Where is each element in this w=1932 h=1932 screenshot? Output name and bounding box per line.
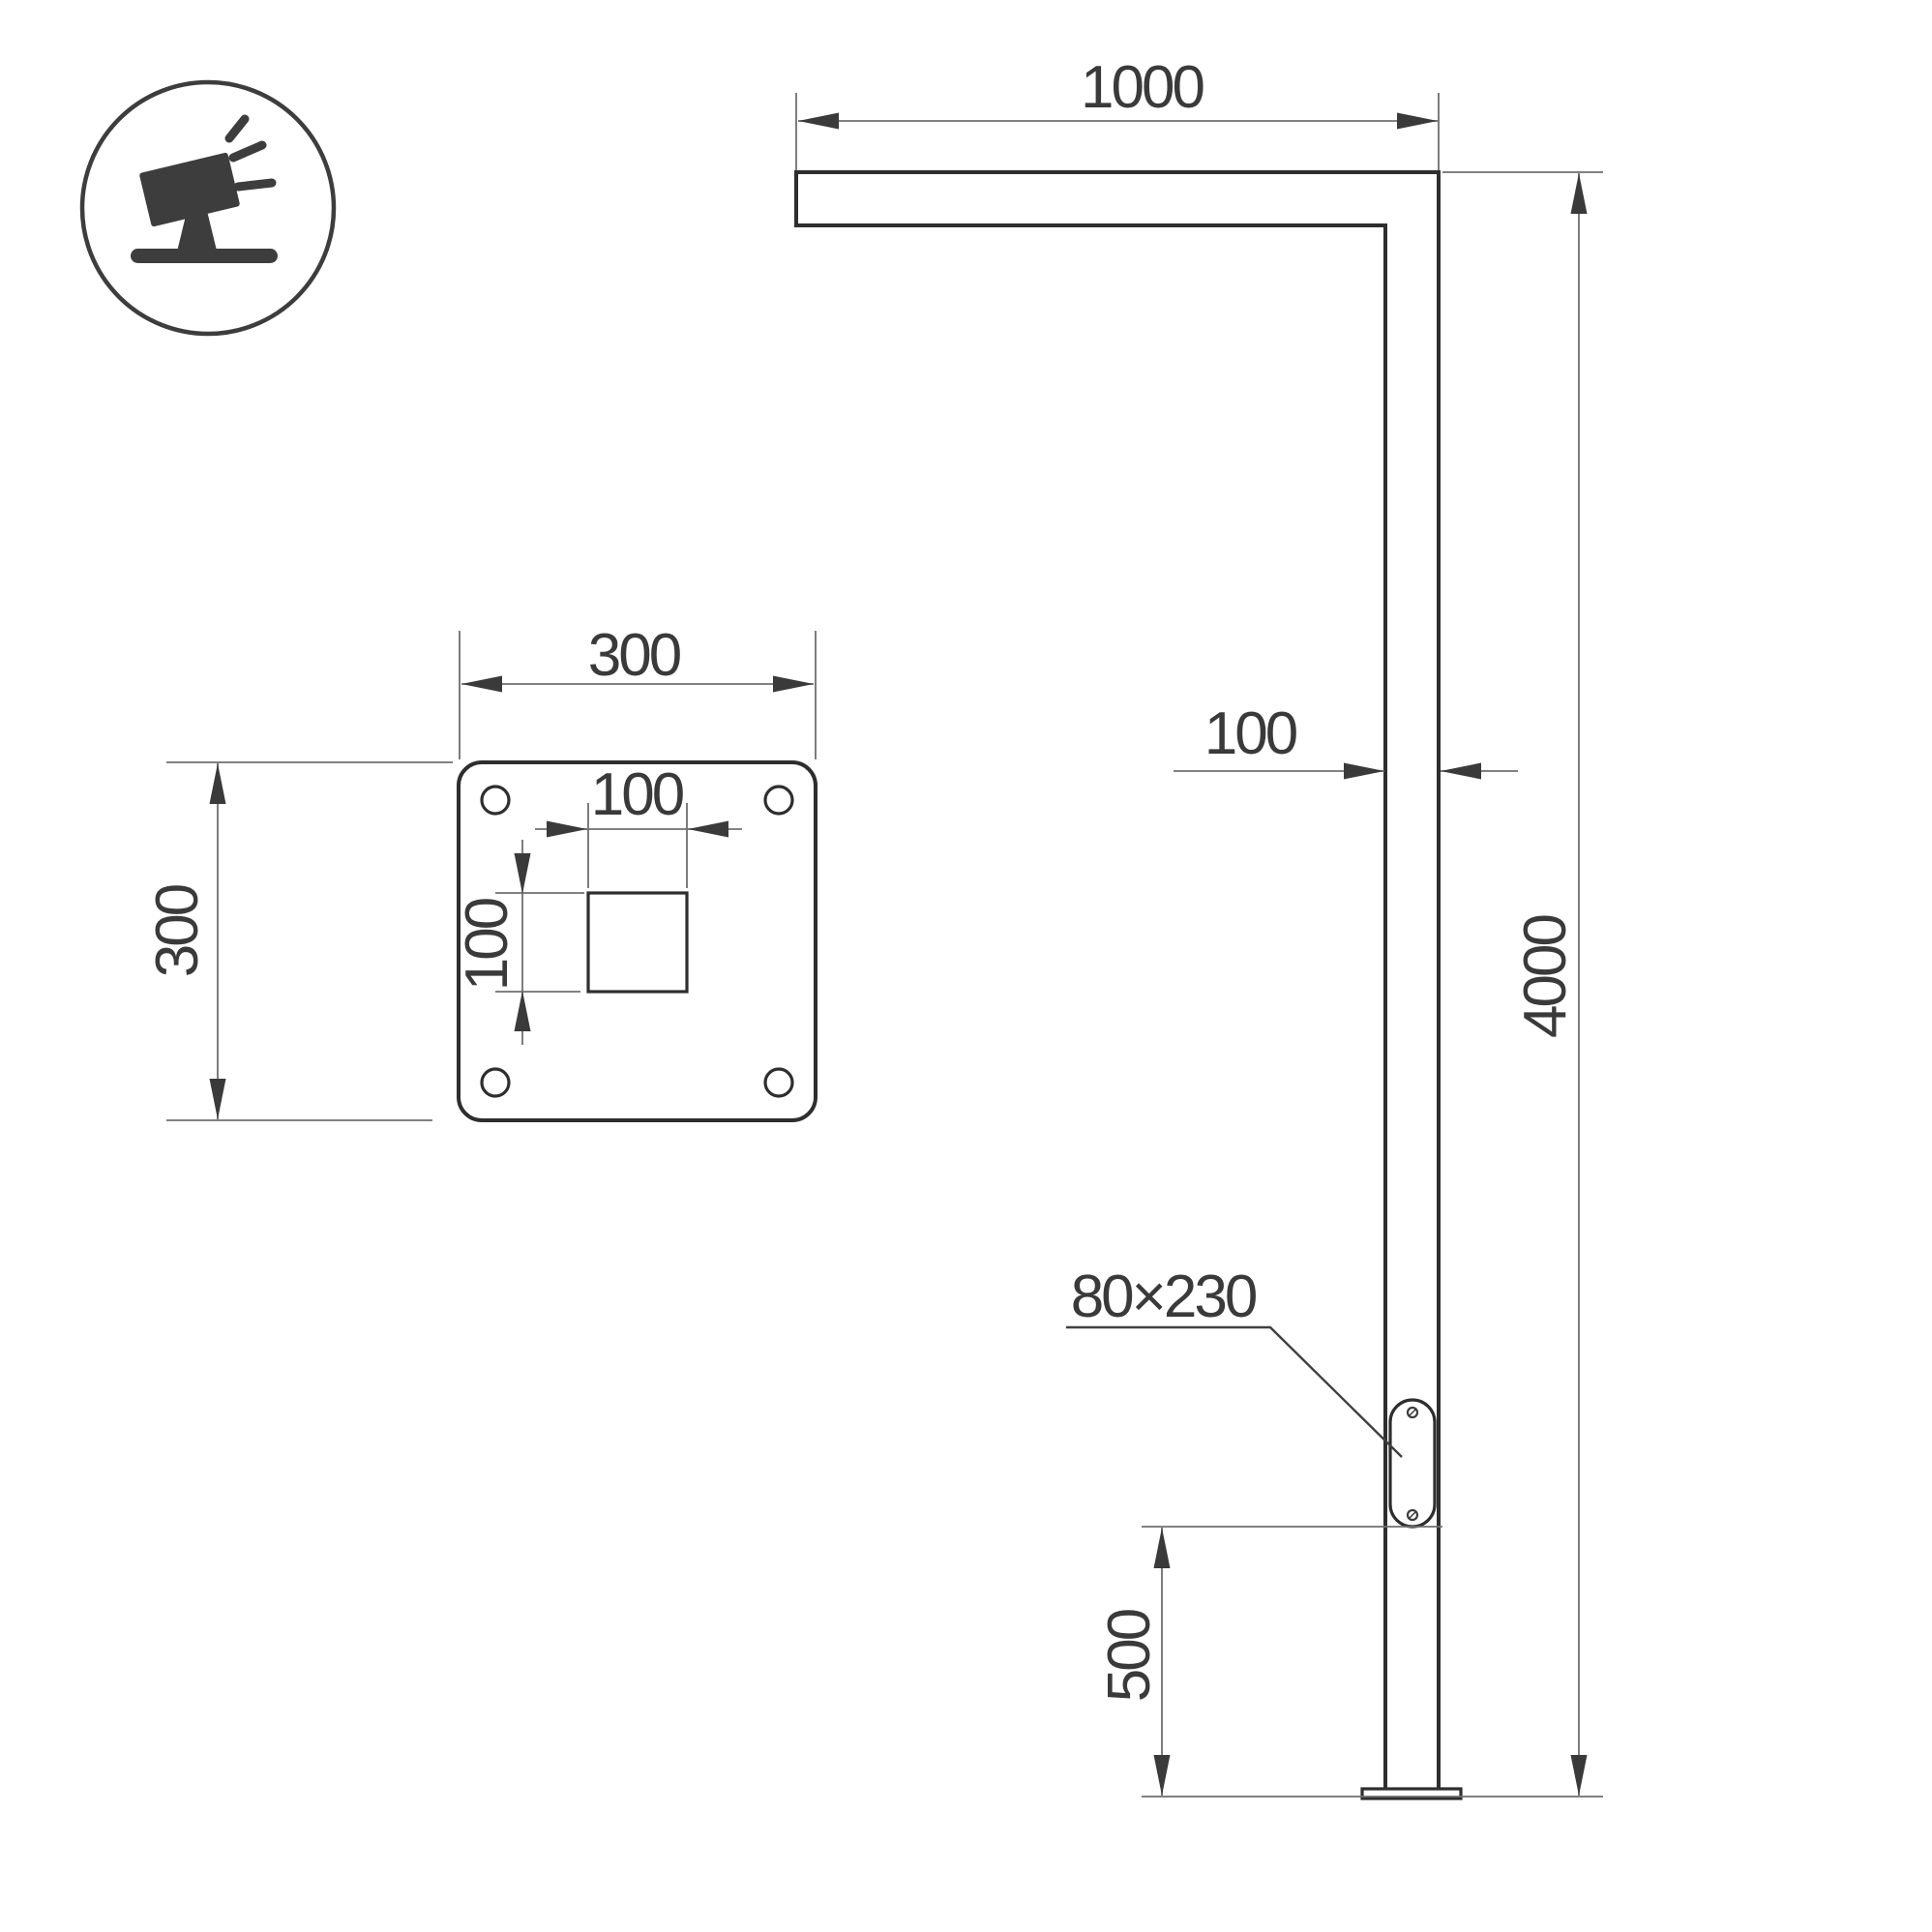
dim-arm-length: 1000 bbox=[796, 54, 1439, 170]
technical-drawing: 1000 100 4000 500 80× bbox=[0, 0, 1932, 1932]
dim-plate-height-label: 300 bbox=[144, 884, 211, 977]
dim-pole-width-label: 100 bbox=[1204, 700, 1297, 767]
dim-total-height: 4000 bbox=[1442, 172, 1603, 1796]
bolt-hole-bottom-left bbox=[482, 1069, 509, 1096]
dim-hole-height-label: 100 bbox=[454, 898, 520, 991]
drawing-canvas: 1000 100 4000 500 80× bbox=[0, 0, 1932, 1932]
light-ray-middle bbox=[233, 145, 262, 158]
hand-hole-screw-bottom-slot bbox=[1410, 1512, 1415, 1518]
bolt-hole-top-left bbox=[482, 787, 509, 814]
floodlight-base bbox=[131, 249, 278, 263]
handhole-size-callout: 80×230 bbox=[1066, 1263, 1402, 1457]
dim-total-height-label: 4000 bbox=[1512, 915, 1579, 1038]
bolt-hole-bottom-right bbox=[765, 1069, 792, 1096]
dim-pole-width: 100 bbox=[1174, 700, 1518, 780]
hand-hole bbox=[1390, 1400, 1435, 1527]
pole-and-arm-outline bbox=[796, 172, 1439, 1789]
dim-plate-height: 300 bbox=[144, 762, 453, 1120]
light-rays bbox=[229, 119, 272, 187]
dim-hole-width-label: 100 bbox=[591, 761, 684, 828]
dim-arm-length-label: 1000 bbox=[1081, 54, 1204, 121]
bolt-hole-top-right bbox=[765, 787, 792, 814]
dim-plate-width: 300 bbox=[460, 622, 816, 759]
hand-hole-cover bbox=[1390, 1400, 1435, 1527]
base-plate-view: 300 300 100 100 bbox=[144, 622, 816, 1120]
handhole-size-label: 80×230 bbox=[1071, 1263, 1257, 1330]
dim-hole-height: 100 bbox=[454, 840, 584, 1045]
floodlight-icon bbox=[82, 82, 334, 334]
light-ray-top bbox=[229, 119, 245, 138]
dim-handhole-offset-label: 500 bbox=[1096, 1609, 1163, 1702]
dim-plate-width-label: 300 bbox=[588, 622, 681, 689]
pole-front-view: 1000 100 4000 500 80× bbox=[796, 54, 1603, 1798]
light-ray-bottom bbox=[238, 183, 272, 187]
dim-handhole-offset: 500 bbox=[1096, 1527, 1442, 1796]
center-square-hole bbox=[588, 893, 687, 992]
dim-hole-width: 100 bbox=[535, 761, 742, 888]
hand-hole-screw-top-slot bbox=[1410, 1410, 1415, 1415]
